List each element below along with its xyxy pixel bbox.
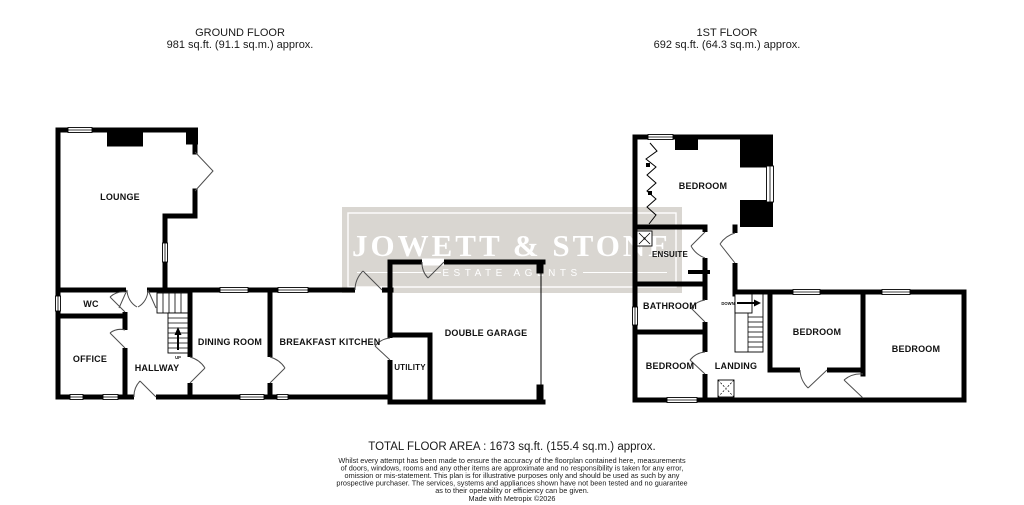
room-label-wc: WC: [83, 299, 99, 309]
window: [220, 288, 248, 293]
french-doors: [195, 152, 213, 191]
ground-floor-area: 981 sq.ft. (91.1 sq.m.) approx.: [167, 39, 314, 51]
chimney-breast: [740, 135, 773, 168]
window: [767, 166, 774, 202]
chimney-breast: [107, 128, 143, 147]
metropix-credit: Made with Metropix ©2026: [469, 494, 556, 503]
footer: TOTAL FLOOR AREA : 1673 sq.ft. (155.4 sq…: [336, 441, 687, 503]
room-label-landing: LANDING: [715, 361, 757, 371]
room-label-office: OFFICE: [73, 354, 107, 364]
room-label-dining-room: DINING ROOM: [198, 337, 262, 347]
first-floor-door-gaps: [702, 232, 828, 374]
room-label-bedroom-middle: BEDROOM: [793, 327, 841, 337]
room-label-hallway: HALLWAY: [135, 363, 180, 373]
chimney-breast: [740, 200, 773, 227]
watermark: JOWETT & STONE ESTATE AGENTS: [342, 207, 682, 293]
garage-door-pier-bottom: [537, 385, 544, 400]
window: [103, 395, 118, 400]
room-label-bathroom: BATHROOM: [643, 301, 697, 311]
garage-door-pier-top: [537, 260, 544, 274]
room-label-utility: UTILITY: [394, 363, 426, 372]
loft-hatch-icon: [718, 380, 734, 397]
window: [240, 395, 264, 400]
first-floor-plan: DOWN BEDROOM ENSUITE BATHROOM BEDROOM LA…: [633, 135, 965, 403]
floorplan-page: GROUND FLOOR 981 sq.ft. (91.1 sq.m.) app…: [0, 0, 1024, 505]
window: [648, 135, 673, 140]
total-floor-area: TOTAL FLOOR AREA : 1673 sq.ft. (155.4 sq…: [368, 441, 655, 453]
watermark-name: JOWETT & STONE: [352, 228, 672, 263]
up-label: UP: [175, 355, 181, 360]
room-label-double-garage: DOUBLE GARAGE: [445, 328, 528, 338]
window: [70, 395, 83, 400]
shower-icon: [637, 231, 652, 246]
window: [793, 290, 820, 295]
first-floor-labels: BEDROOM ENSUITE BATHROOM BEDROOM LANDING…: [643, 181, 940, 371]
room-label-ensuite: ENSUITE: [652, 250, 689, 259]
first-floor-title: 1ST FLOOR: [697, 27, 758, 39]
stairs-down: DOWN: [721, 294, 763, 352]
window: [68, 128, 92, 133]
watermark-tagline: ESTATE AGENTS: [442, 268, 581, 279]
ground-floor-title: GROUND FLOOR: [195, 27, 285, 39]
first-floor-doors: [690, 232, 863, 398]
window: [56, 296, 61, 311]
first-floor-area: 692 sq.ft. (64.3 sq.m.) approx.: [654, 39, 801, 51]
window: [163, 243, 168, 262]
window: [277, 395, 288, 400]
stairs-up: UP: [157, 293, 188, 360]
window: [667, 398, 697, 403]
window: [278, 288, 308, 293]
room-label-bedroom-front: BEDROOM: [679, 181, 727, 191]
floorplan-canvas: GROUND FLOOR 981 sq.ft. (91.1 sq.m.) app…: [0, 0, 1024, 505]
window: [633, 307, 638, 325]
room-label-bedroom-left: BEDROOM: [646, 361, 694, 371]
room-label-lounge: LOUNGE: [100, 192, 140, 202]
window: [882, 290, 910, 295]
down-label: DOWN: [721, 301, 734, 306]
room-label-bedroom-right: BEDROOM: [892, 344, 940, 354]
room-label-breakfast-kitchen: BREAKFAST KITCHEN: [280, 337, 381, 347]
